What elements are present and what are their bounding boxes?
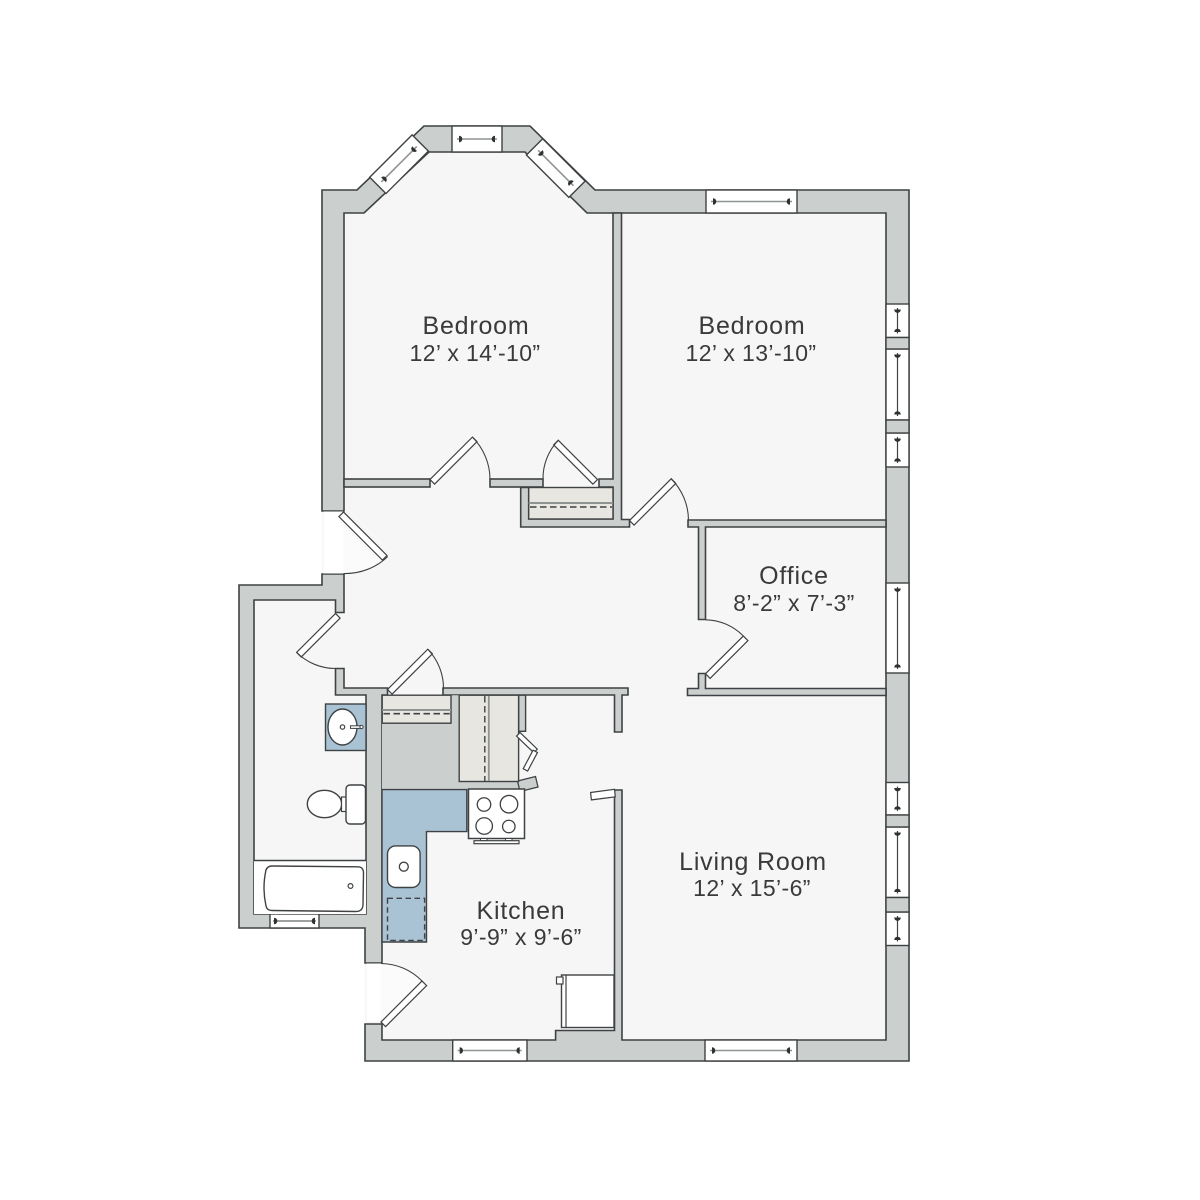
svg-text:Bedroom: Bedroom	[698, 312, 805, 340]
svg-text:Office: Office	[759, 562, 829, 590]
svg-text:8’-2” x 7’-3”: 8’-2” x 7’-3”	[733, 590, 855, 616]
svg-text:Bedroom: Bedroom	[422, 312, 529, 340]
svg-text:12’ x 13’-10”: 12’ x 13’-10”	[686, 340, 817, 366]
svg-text:Living Room: Living Room	[679, 848, 827, 876]
svg-text:12’ x 15’-6”: 12’ x 15’-6”	[693, 875, 811, 901]
svg-text:12’ x 14’-10”: 12’ x 14’-10”	[410, 340, 541, 366]
svg-text:Kitchen: Kitchen	[477, 897, 566, 925]
svg-text:9’-9” x 9’-6”: 9’-9” x 9’-6”	[460, 924, 582, 950]
